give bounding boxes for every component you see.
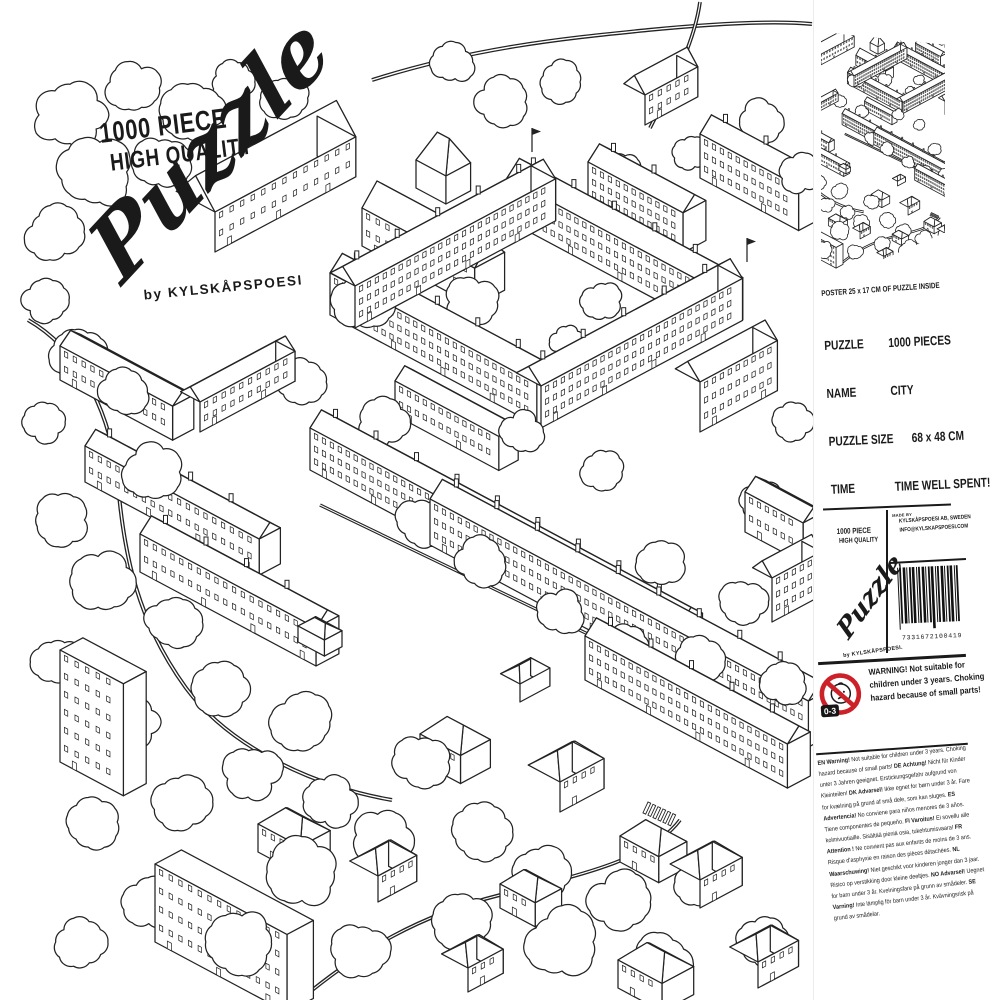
barcode: 7331672100419: [892, 563, 969, 644]
puzzle-box: 1000 PIECE HIGH QUALITY Puzzle by KYLSKÅ…: [0, 0, 1000, 1000]
brand-byline: by KYLSKÅPSPOESI: [143, 272, 304, 302]
spec-row: PUZZLE 1000 PIECES: [824, 331, 980, 353]
spec-value: 1000 PIECES: [888, 332, 951, 350]
mini-brand-logo: 1000 PIECE HIGH QUALITY Puzzle by KYLSKÅ…: [836, 510, 897, 662]
specs-table: PUZZLE 1000 PIECES NAME CITY PUZZLE SIZE…: [824, 331, 988, 530]
spec-row: NAME CITY: [826, 379, 982, 401]
warning-text: WARNING! Not suitable for children under…: [868, 666, 1000, 706]
poster-thumbnail-art: [821, 32, 945, 286]
spec-row: PUZZLE SIZE 68 x 48 CM: [828, 427, 984, 449]
spec-row: TIME TIME WELL SPENT!: [831, 475, 987, 497]
age-range-text: 0-3: [824, 706, 837, 717]
spec-label: TIME: [831, 481, 856, 497]
box-side-panel: POSTER 25 x 17 CM OF PUZZLE INSIDE PUZZL…: [813, 0, 1000, 1000]
spec-label: PUZZLE: [824, 336, 864, 353]
barcode-digits: 7331672100419: [902, 632, 963, 642]
poster-caption: POSTER 25 x 17 CM OF PUZZLE INSIDE: [821, 278, 981, 298]
mini-brand-byline: by KYLSKÅPSPOESI.: [843, 645, 903, 659]
age-warning-icon: 0-3: [815, 668, 867, 723]
maker-info: MADE BY KYLSKÅPSPOESI AB, SWEDEN INFO@KY…: [892, 508, 979, 536]
brand-logo: 1000 PIECE HIGH QUALITY Puzzle by KYLSKÅ…: [98, 90, 375, 359]
panel-vertical-divider: [886, 510, 888, 653]
legal-text: EN Warning! Not suitable for children un…: [817, 742, 989, 925]
barcode-bars: [897, 565, 960, 630]
spec-value: 68 x 48 CM: [911, 428, 964, 445]
spec-value: TIME WELL SPENT!: [894, 475, 990, 494]
box-edge: [813, 0, 814, 1000]
spec-label: NAME: [826, 385, 857, 401]
spec-value: CITY: [890, 382, 914, 398]
spec-label: PUZZLE SIZE: [828, 431, 893, 449]
poster-thumbnail: [821, 32, 945, 286]
